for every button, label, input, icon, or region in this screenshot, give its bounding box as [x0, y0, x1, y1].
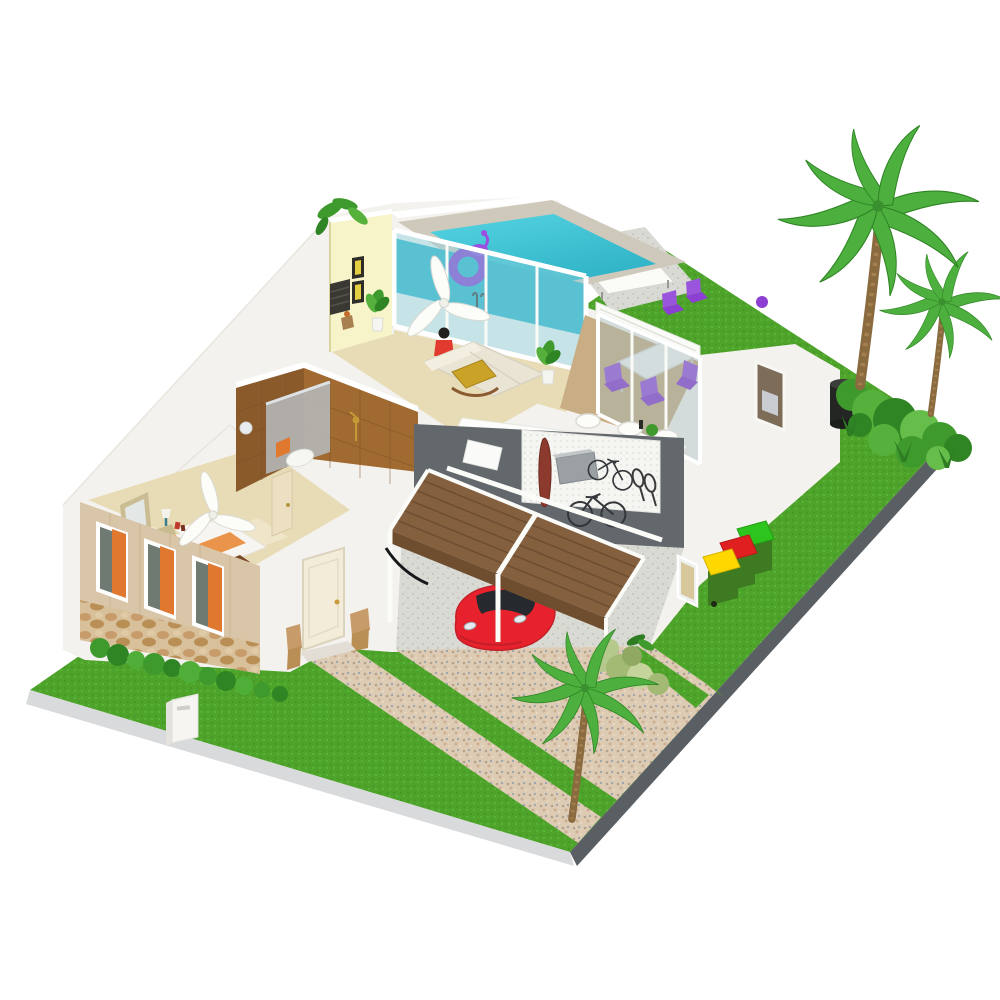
framed-picture — [352, 256, 364, 279]
laundry-window — [756, 362, 784, 430]
purple-planter — [756, 296, 768, 308]
palm-tree-small — [879, 249, 1000, 414]
slat-shelf-unit — [330, 279, 350, 315]
bedroom-window — [98, 524, 126, 600]
bedroom-window-3 — [194, 558, 222, 634]
garage-side-window — [678, 556, 697, 606]
framed-picture-2 — [352, 280, 364, 304]
bin-yellow-lid — [703, 549, 740, 607]
isometric-house-render — [0, 0, 1000, 1000]
bedroom-door — [272, 470, 292, 536]
garage — [386, 424, 697, 650]
surfboard — [539, 438, 551, 507]
front-door — [303, 548, 344, 650]
bedroom-window-2 — [146, 541, 174, 617]
mailbox — [166, 694, 198, 746]
wall-cabinet — [552, 449, 598, 484]
round-mirror — [240, 422, 252, 434]
scene-canvas — [0, 0, 1000, 1000]
